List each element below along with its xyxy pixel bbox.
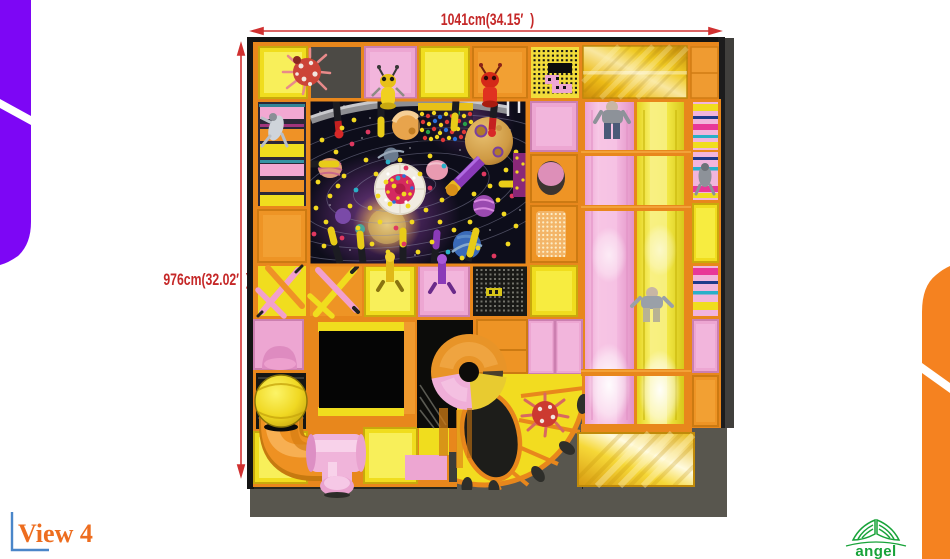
svg-text:angel: angel (855, 543, 896, 559)
